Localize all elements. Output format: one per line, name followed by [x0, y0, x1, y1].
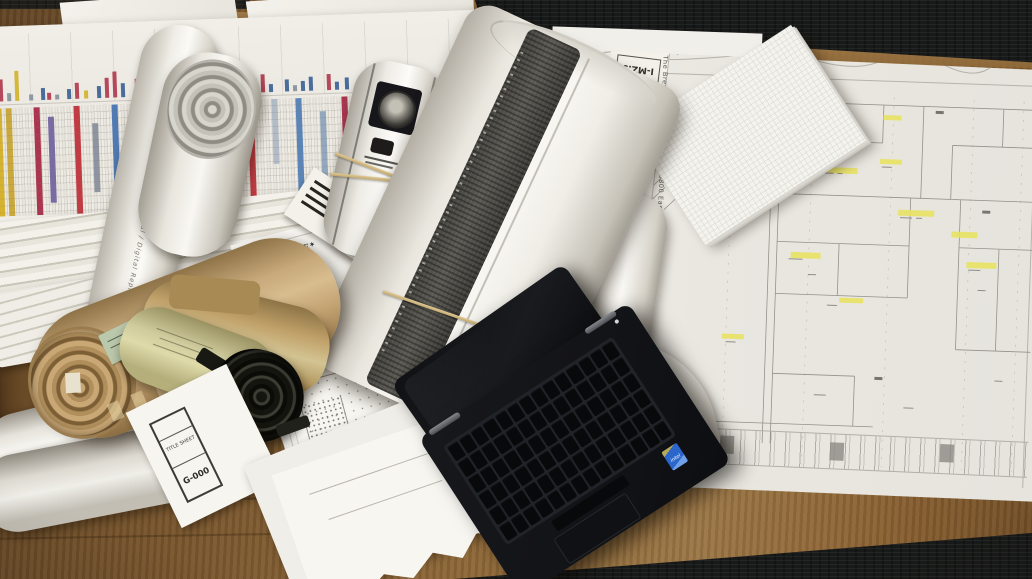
schedule-upper-zone-item [121, 83, 125, 97]
elevation-smudge [939, 444, 954, 463]
roll-spiral-end [156, 51, 265, 168]
schedule-upper-zone-item [335, 82, 339, 90]
schedule-upper-zone-item [0, 79, 3, 101]
schedule-upper-zone-item [105, 78, 110, 98]
schedule-upper-zone-item [309, 77, 313, 91]
power-led [614, 319, 620, 325]
schedule-upper-zone-item [14, 71, 19, 101]
schedule-upper-zone-item [327, 74, 332, 90]
schedule-upper-zone-item [41, 88, 45, 100]
schedule-upper-zone-item [67, 89, 71, 99]
schedule-upper-zone-item [29, 94, 33, 100]
faded-text-line [159, 337, 201, 353]
schedule-upper-zone-item [47, 93, 51, 100]
schedule-upper-zone-item [7, 93, 11, 101]
schedule-upper-zone-item [97, 86, 101, 98]
elevation-smudge [829, 442, 844, 461]
desk-photo: I-MZ.5 The Brewer-Garrett Company · 6800… [0, 0, 1032, 579]
schedule-upper-zone-item [112, 71, 117, 97]
kraft-wrapper-patch [168, 274, 261, 316]
sheet-faint-line [329, 480, 443, 520]
schedule-upper-zone-item [84, 90, 88, 98]
schedule-upper-zone-item [301, 81, 305, 91]
schedule-upper-zone-item [55, 94, 59, 99]
small-logo-block [370, 137, 395, 157]
circular-seal-stamp [374, 87, 420, 133]
schedule-upper-zone-item [285, 79, 289, 91]
schedule-upper-zone-item [269, 84, 273, 92]
paper-tag [65, 372, 81, 393]
schedule-upper-zone-item [345, 77, 349, 89]
schedule-upper-zone-item [75, 83, 80, 99]
schedule-upper-zone-item [261, 74, 266, 92]
intel-sticker: intel [661, 443, 688, 471]
schedule-upper-zone-item [293, 85, 297, 91]
